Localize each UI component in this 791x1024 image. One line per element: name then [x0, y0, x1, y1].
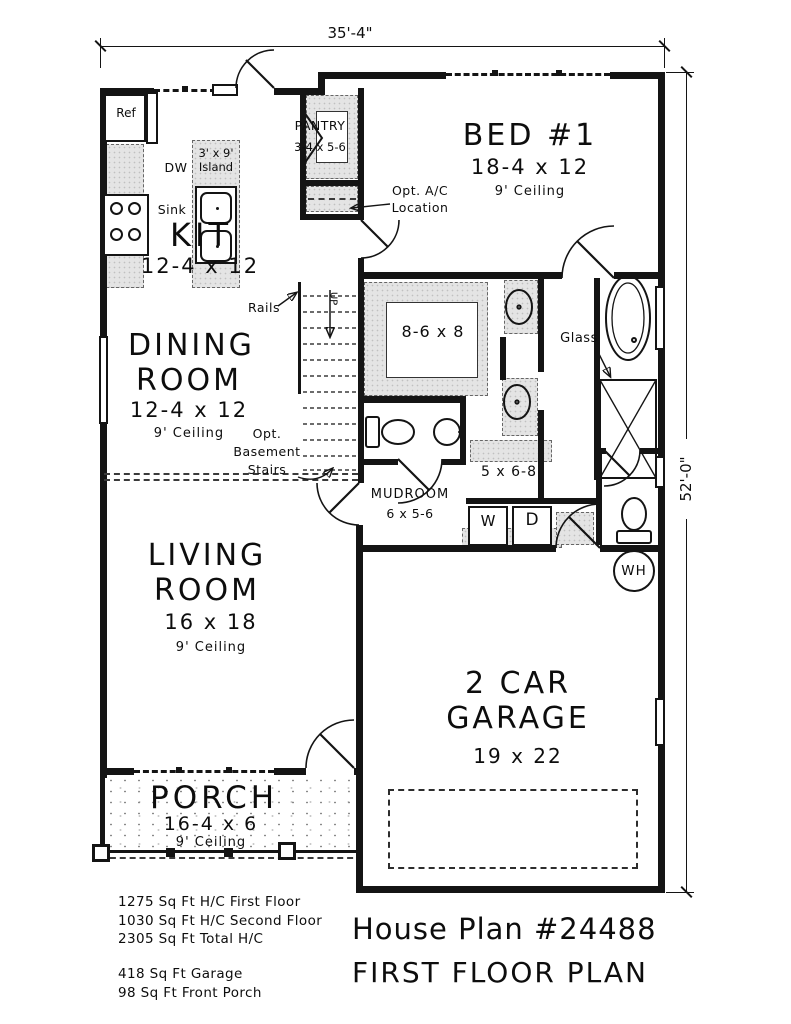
plan-title-block: House Plan #24488 FIRST FLOOR PLAN [352, 912, 657, 989]
bed1-name: BED #1 [448, 118, 612, 153]
rails-label: Rails [242, 300, 286, 315]
toilet-tank [617, 531, 651, 543]
living-ceiling: 9' Ceiling [150, 640, 272, 655]
living-name: LIVING ROOM [146, 538, 268, 609]
dryer-label: D [512, 510, 552, 530]
mudroom-door-leaf [329, 483, 359, 513]
bath-hall-door-leaf [361, 220, 388, 247]
bath-fixtures [366, 276, 656, 543]
floor-plan: 35'-4" 52'-0" [0, 0, 791, 1024]
toilet-bowl [382, 420, 414, 444]
toilet-tank [366, 417, 379, 447]
stairs-up-label: UP [328, 284, 339, 314]
porch-name: PORCH [150, 780, 272, 816]
sqft-line: 2305 Sq Ft Total H/C [118, 930, 322, 949]
glass-arrow [597, 350, 610, 376]
opt-basement-label-3: Stairs [236, 462, 298, 477]
island-label-2: Island [192, 160, 240, 174]
pantry-size: 3-4 x 5-6 [284, 140, 356, 154]
rear-door-leaf [246, 60, 274, 88]
closet-size: 8-6 x 8 [400, 322, 466, 341]
garage-entry-door-leaf [569, 517, 600, 548]
pantry-name: PANTRY [286, 118, 354, 133]
garage-size: 19 x 22 [438, 744, 598, 768]
vanity-sink [504, 385, 530, 419]
bath-hall-size: 5 x 6-8 [478, 464, 540, 480]
tub-drain [632, 338, 636, 342]
opt-basement-label-2: Basement [226, 444, 308, 459]
washer-label: W [468, 512, 508, 530]
opt-basement-label-1: Opt. [236, 426, 298, 441]
glass-label: Glass [556, 331, 602, 346]
toilet-bowl [622, 498, 646, 530]
opt-ac-label-2: Location [380, 200, 460, 215]
sink-label: Sink [152, 202, 192, 217]
plan-title: House Plan #24488 [352, 912, 657, 946]
sqft-line: 418 Sq Ft Garage [118, 965, 322, 984]
dw-label: DW [160, 160, 192, 175]
bed1-ceiling: 9' Ceiling [448, 184, 612, 199]
sqft-line: 1275 Sq Ft H/C First Floor [118, 893, 322, 912]
tub-inner [612, 283, 644, 353]
island-label-1: 3' x 9' [192, 146, 240, 160]
sqft-line: 1030 Sq Ft H/C Second Floor [118, 912, 322, 931]
porch-size: 16-4 x 6 [150, 813, 272, 835]
front-door-leaf [320, 734, 354, 768]
dining-ceiling: 9' Ceiling [128, 426, 250, 441]
porch-ceiling: 9' Ceiling [150, 835, 272, 850]
wc-door-leaf [398, 459, 429, 490]
pedestal-sink [434, 419, 460, 445]
bedroom-door-leaf [577, 241, 614, 278]
sqft-line: 98 Sq Ft Front Porch [118, 984, 322, 1003]
plan-subtitle: FIRST FLOOR PLAN [352, 956, 657, 989]
kitchen-size: 12-4 x 12 [140, 254, 260, 278]
square-footage-block: 1275 Sq Ft H/C First Floor 1030 Sq Ft H/… [118, 893, 322, 1002]
dining-size: 12-4 x 12 [128, 398, 250, 422]
kitchen-name: KIT [146, 216, 256, 254]
mudroom-size: 6 x 5-6 [366, 506, 454, 521]
dining-name: DINING ROOM [128, 328, 250, 399]
vanity-drain [515, 400, 518, 403]
bed1-size: 18-4 x 12 [448, 155, 612, 179]
mudroom-name: MUDROOM [366, 487, 454, 502]
ref-label: Ref [108, 106, 144, 120]
vanity-drain [517, 305, 520, 308]
vanity-sink [506, 290, 532, 324]
living-size: 16 x 18 [150, 610, 272, 634]
garage-name: 2 CAR GARAGE [438, 666, 598, 737]
